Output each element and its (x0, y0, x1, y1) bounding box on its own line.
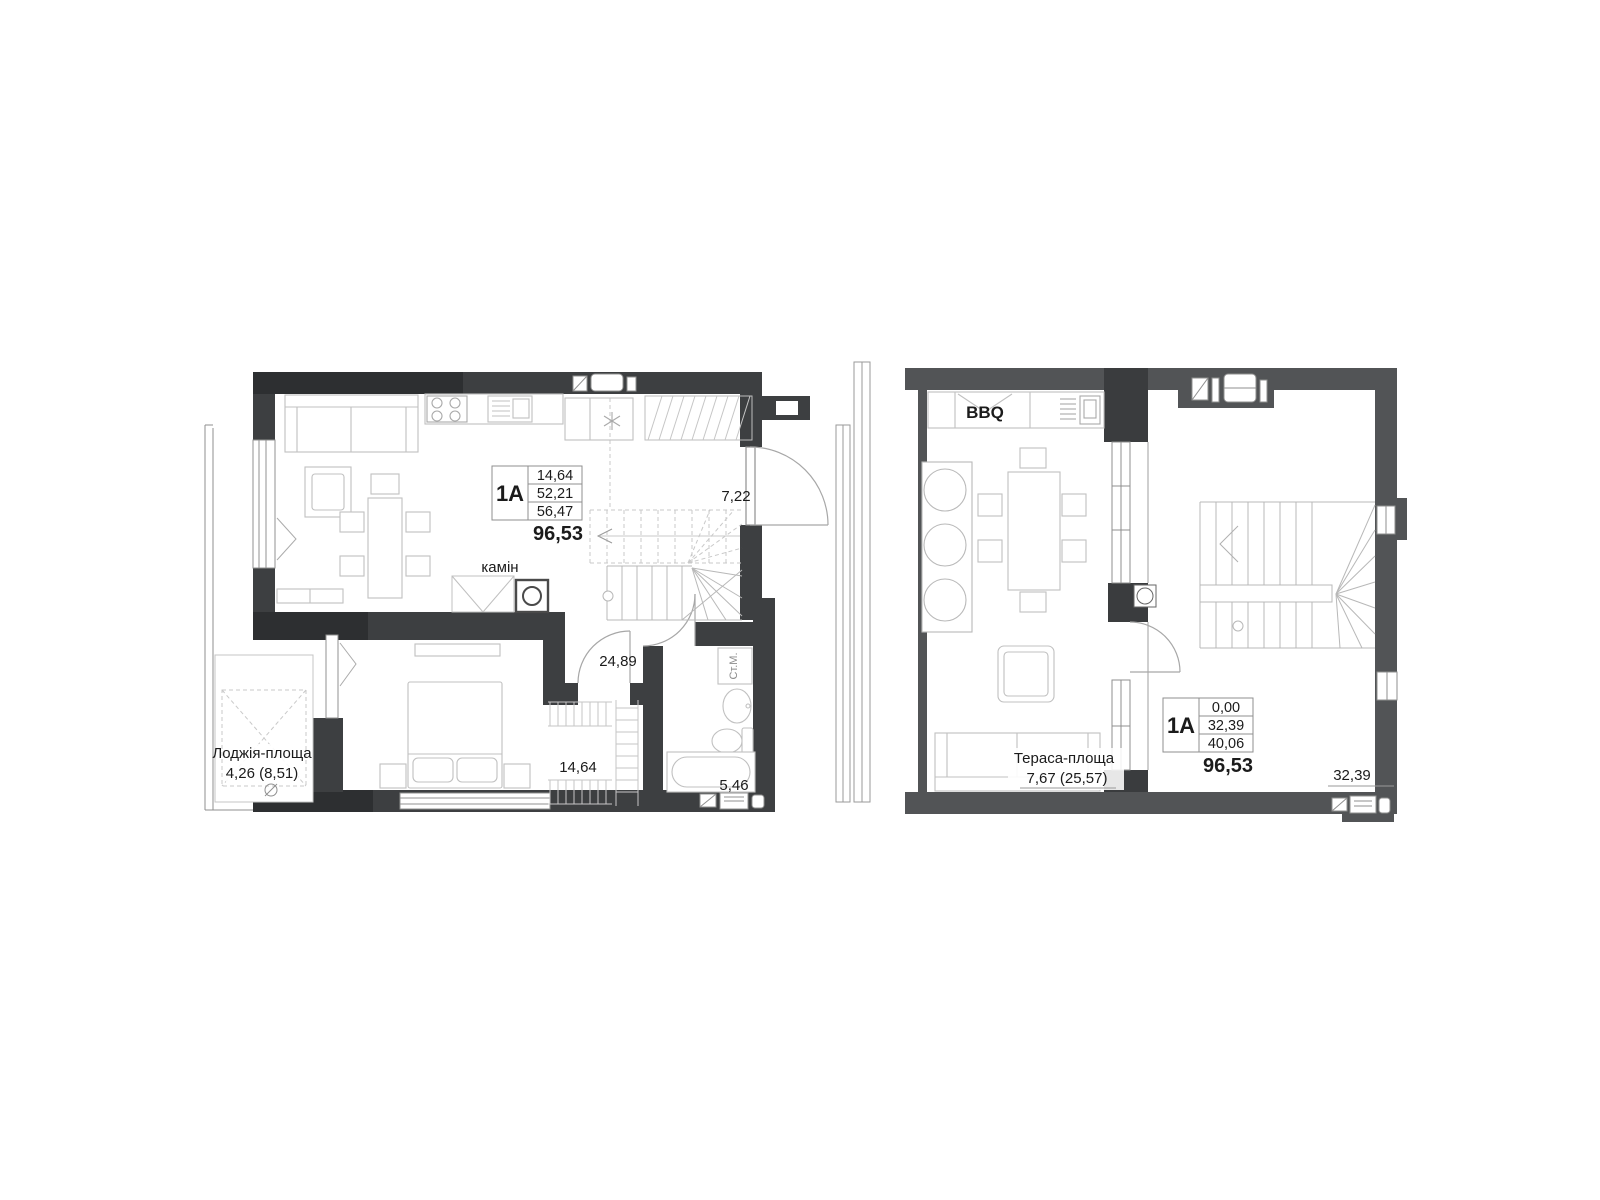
terrace-area-value: 7,67 (25,57) (1027, 770, 1108, 787)
bedroom-window (400, 793, 550, 809)
floorplan-page: камін (0, 0, 1600, 1200)
dresser (415, 644, 500, 656)
sink-unit-icon (488, 396, 532, 422)
area-row: 52,21 (537, 486, 573, 502)
shaft-fixtures (1192, 374, 1267, 402)
area-row: 14,64 (537, 468, 573, 484)
sideboard (277, 589, 343, 603)
kitchen-counter (425, 394, 563, 424)
left-area-table: 1A 14,64 52,21 56,47 96,53 (492, 466, 583, 545)
fireplace-label: камін (481, 559, 518, 576)
kitchen (425, 394, 633, 440)
fridge-icon (565, 398, 633, 440)
entry-area-label: 7,22 (721, 488, 750, 505)
area-row: 40,06 (1208, 736, 1244, 752)
washing-machine-label: Ст.М. (728, 652, 740, 679)
terrace-railings (836, 362, 870, 802)
stove-icon (427, 396, 467, 422)
bedroom-furniture (380, 644, 530, 788)
bbq-label: BBQ (966, 403, 1004, 422)
bathroom-fixtures (667, 648, 755, 792)
coffee-table (998, 646, 1054, 702)
nightstand (380, 764, 406, 788)
stairs-solid-flight (603, 566, 742, 620)
bedroom-area-label: 14,64 (559, 759, 597, 776)
area-row: 32,39 (1208, 718, 1244, 734)
nightstand (504, 764, 530, 788)
fireplace: камін (452, 559, 548, 612)
loggia-title: Лоджія-площа (212, 745, 312, 762)
upper-room-area-label: 32,39 (1333, 767, 1371, 784)
entry-wardrobe (645, 396, 752, 440)
armchair (305, 467, 351, 517)
sofa (285, 395, 418, 452)
staircase-lower-level (590, 398, 742, 620)
entrance-door (740, 447, 828, 525)
right-floor-plan: Тераса-площа 7,67 (25,57) BBQ (836, 362, 1407, 822)
bottom-shaft-fixtures (1332, 796, 1390, 813)
staircase-upper-level (1200, 502, 1375, 648)
fireplace-icon (516, 580, 548, 612)
area-row: 0,00 (1212, 700, 1240, 716)
total-area-label: 96,53 (1203, 755, 1253, 777)
left-floor-plan: камін (205, 372, 828, 812)
terrace-title: Тераса-площа (1014, 750, 1115, 767)
area-row: 56,47 (537, 504, 573, 520)
terrace-door (1130, 622, 1180, 672)
terrace-furniture (922, 392, 1104, 791)
bed (408, 682, 502, 788)
unit-label: 1A (496, 481, 524, 506)
toilet-icon (712, 728, 753, 754)
living-room-furniture (277, 395, 430, 603)
boiler-icon (1134, 585, 1156, 607)
loggia-area-value: 4,26 (8,51) (226, 765, 299, 782)
unit-label: 1A (1167, 713, 1195, 738)
floor-plan-canvas: камін (0, 0, 1600, 1200)
total-area-label: 96,53 (533, 523, 583, 545)
right-area-table: 1A 0,00 32,39 40,06 96,53 (1163, 698, 1253, 777)
bbq-counter (928, 392, 1104, 428)
balcony-door (326, 635, 338, 718)
hall-area-label: 24,89 (599, 653, 637, 670)
terrace-dining-table (978, 448, 1086, 612)
dining-table (340, 474, 430, 598)
bathroom-area-label: 5,46 (719, 777, 748, 794)
pouf-chairs (922, 462, 972, 632)
